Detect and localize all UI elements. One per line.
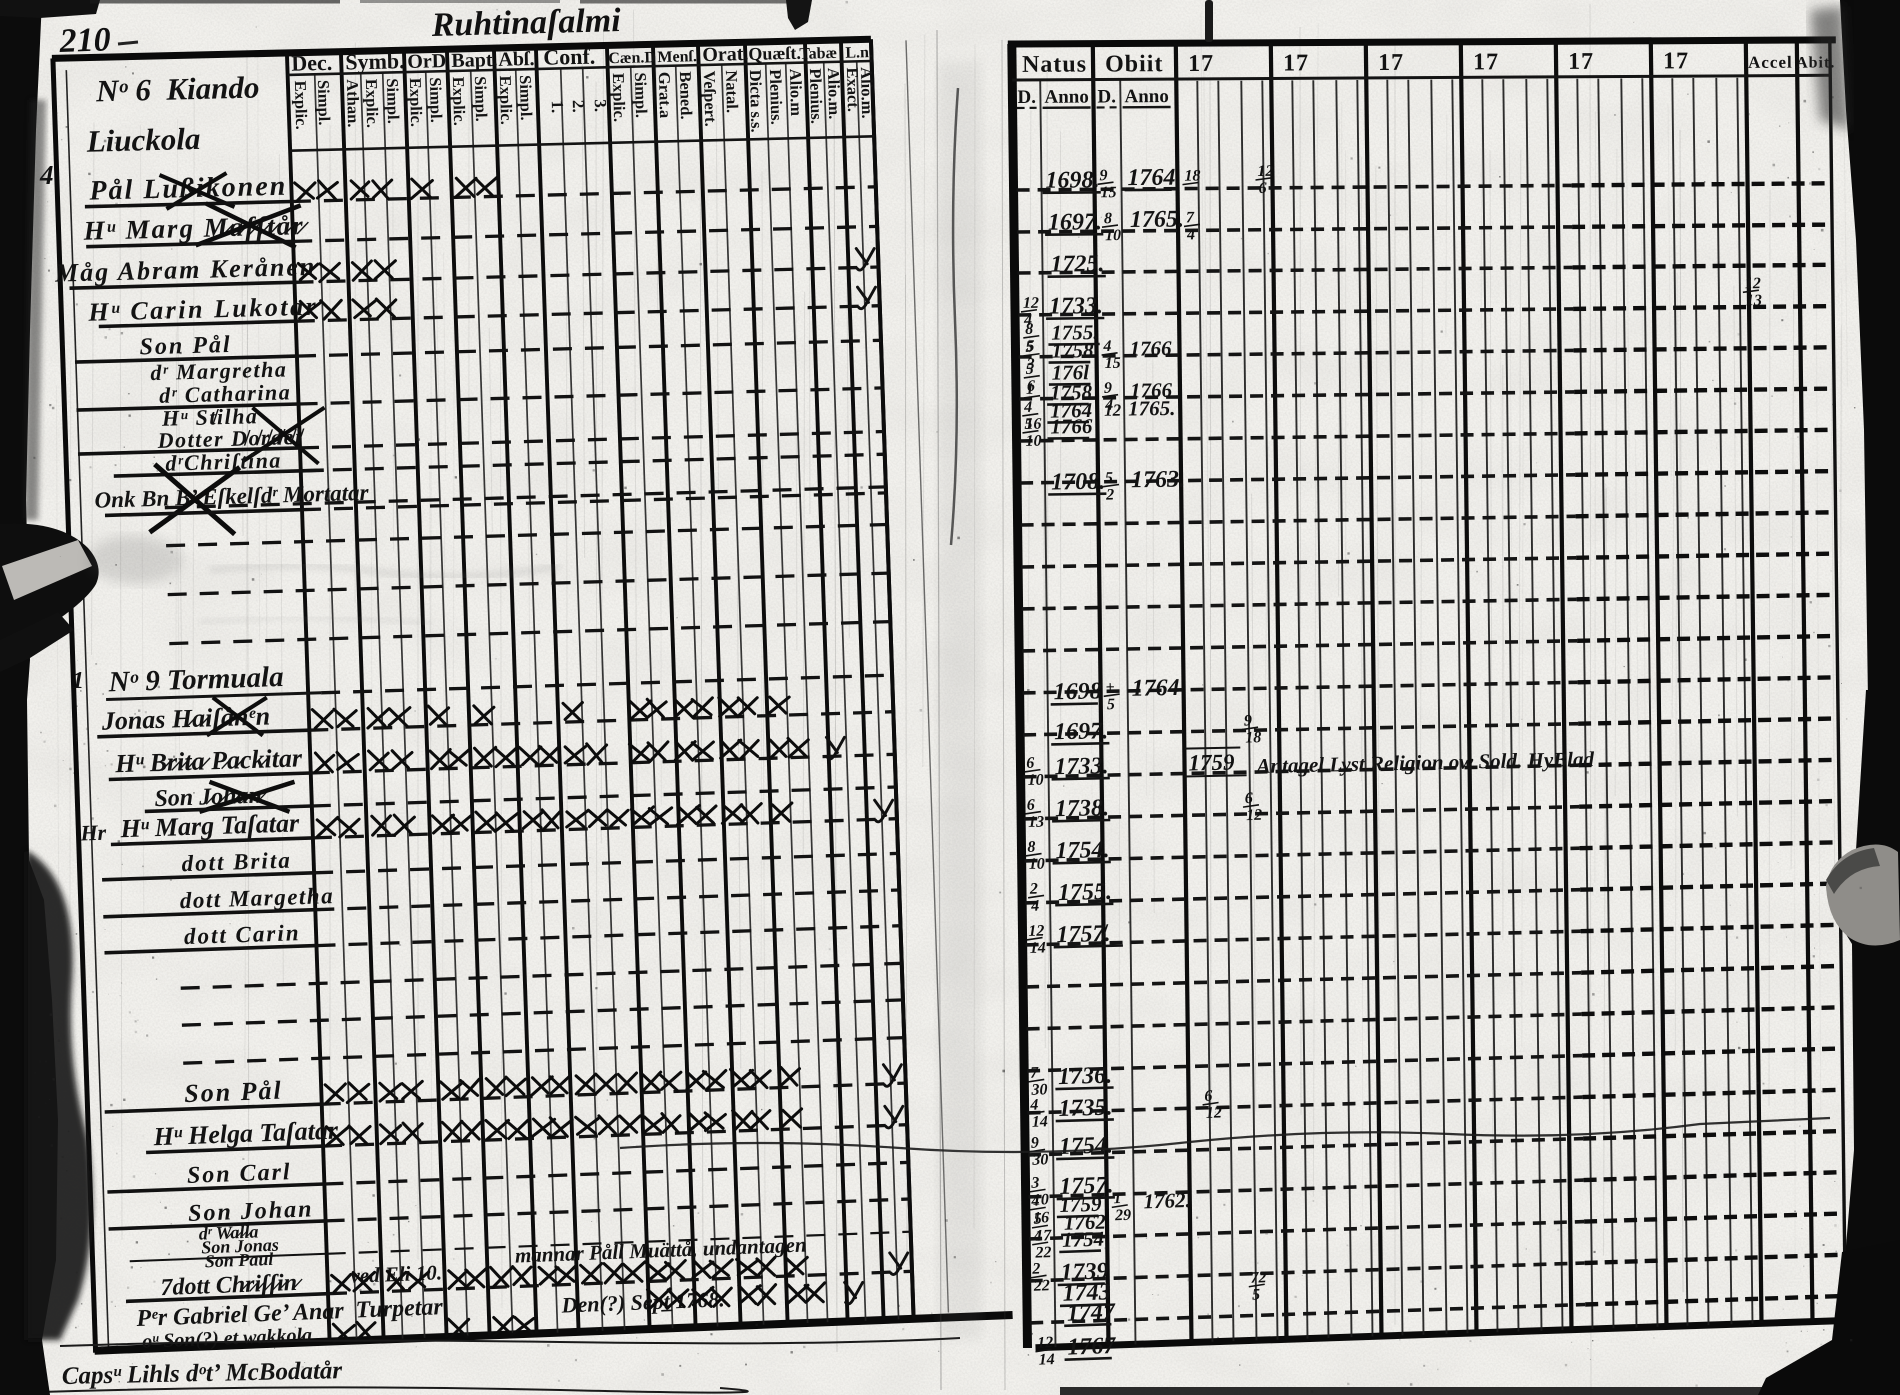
svg-text:1757̸.: 1757̸. — [1056, 921, 1111, 948]
svg-text:6: 6 — [1259, 180, 1267, 197]
svg-text:1738.: 1738. — [1055, 795, 1110, 822]
svg-text:Simpl.: Simpl. — [516, 75, 536, 121]
svg-text:Simpl.: Simpl. — [471, 76, 491, 122]
svg-text:1767: 1767 — [1067, 1333, 1117, 1361]
svg-text:1759: 1759 — [1188, 750, 1235, 776]
svg-text:1: 1 — [1113, 1190, 1122, 1207]
svg-text:15: 15 — [1101, 184, 1117, 201]
svg-text:Abſ.: Abſ. — [498, 48, 535, 71]
svg-text:4: 4 — [1033, 1227, 1043, 1244]
svg-text:Dec.: Dec. — [291, 50, 332, 76]
svg-text:Quæſt.: Quæſt. — [748, 43, 801, 64]
svg-text:Explic.: Explic. — [496, 75, 516, 125]
svg-text:2: 2 — [1029, 881, 1038, 898]
svg-text:1747: 1747 — [1066, 1299, 1116, 1327]
svg-text:Son Paul: Son Paul — [204, 1249, 273, 1272]
svg-text:Anno: Anno — [1124, 86, 1168, 107]
svg-text:13: 13 — [1746, 292, 1762, 309]
svg-text:1766: 1766 — [1129, 336, 1172, 361]
svg-text:2: 2 — [1031, 1261, 1041, 1278]
svg-text:Tabæ: Tabæ — [799, 45, 837, 63]
svg-text:Explic.: Explic. — [449, 77, 469, 127]
svg-text:Nᵒ 6 Kiando: Nᵒ 6 Kiando — [95, 70, 260, 109]
svg-text:1697.: 1697. — [1048, 209, 1102, 235]
svg-text:17: 17 — [1663, 48, 1689, 74]
svg-text:L.n.: L.n. — [845, 44, 873, 62]
svg-text:2: 2 — [1105, 487, 1114, 504]
svg-text:12: 12 — [1246, 807, 1262, 824]
svg-text:5: 5 — [1026, 361, 1034, 378]
svg-text:D.: D. — [1017, 87, 1036, 108]
svg-text:1698: 1698 — [1053, 678, 1101, 705]
svg-text:Symb.: Symb. — [345, 48, 405, 74]
svg-text:1733.: 1733. — [1049, 293, 1103, 320]
svg-text:Liuckola: Liuckola — [85, 121, 200, 159]
svg-text:30: 30 — [1031, 1151, 1048, 1168]
svg-text:1755.: 1755. — [1058, 879, 1113, 906]
svg-text:17: 17 — [1568, 49, 1594, 75]
svg-text:Obiit: Obiit — [1105, 51, 1163, 77]
svg-text:Grat.a: Grat.a — [655, 72, 675, 119]
svg-text:13: 13 — [1028, 814, 1044, 831]
svg-text:4: 4 — [1186, 226, 1195, 243]
svg-text:10: 10 — [1025, 433, 1041, 450]
svg-text:17: 17 — [1188, 51, 1214, 77]
svg-text:12: 12 — [1206, 1104, 1222, 1121]
svg-text:Plenius.: Plenius. — [806, 68, 826, 124]
svg-text:Nᵒ 9 Tormuala: Nᵒ 9 Tormuala — [107, 661, 284, 698]
svg-text:5: 5 — [1033, 1211, 1042, 1228]
svg-text:10: 10 — [1027, 772, 1043, 789]
svg-text:12: 12 — [1104, 401, 1122, 420]
svg-text:1: 1 — [1026, 381, 1034, 398]
svg-text:1765.: 1765. — [1128, 396, 1176, 421]
svg-text:4: 4 — [1030, 1193, 1040, 1210]
svg-text:Conf.: Conf. — [543, 44, 596, 70]
svg-text:15: 15 — [1105, 355, 1121, 372]
svg-text:1762.: 1762. — [1143, 1188, 1191, 1213]
svg-text:9: 9 — [1104, 380, 1112, 397]
svg-text:4: 4 — [1029, 1097, 1038, 1114]
svg-text:1708.: 1708. — [1051, 469, 1105, 496]
svg-text:1754.: 1754. — [1055, 837, 1110, 864]
svg-text:1754: 1754 — [1062, 1227, 1105, 1252]
svg-text:Alio.m.: Alio.m. — [857, 67, 877, 119]
svg-text:Ruhtinaſalmi: Ruhtinaſalmi — [430, 2, 621, 44]
svg-text:3.: 3. — [591, 99, 610, 112]
svg-text:Orat.: Orat. — [702, 43, 749, 66]
svg-text:10: 10 — [1105, 227, 1121, 244]
svg-text:Veſpert.: Veſpert. — [700, 71, 720, 127]
svg-text:Explic.: Explic. — [406, 78, 426, 128]
svg-text:1764: 1764 — [1131, 675, 1179, 702]
svg-text:8: 8 — [1027, 839, 1035, 856]
svg-text:Dicta s.s.: Dicta s.s. — [746, 70, 767, 133]
svg-text:6: 6 — [1245, 790, 1253, 807]
svg-text:210: 210 — [58, 21, 111, 60]
svg-text:+: + — [1105, 679, 1114, 696]
svg-text:D.: D. — [1097, 86, 1116, 107]
svg-text:1765.: 1765. — [1130, 207, 1184, 233]
svg-text:5: 5 — [1107, 696, 1115, 713]
svg-text:9: 9 — [1031, 1135, 1039, 1152]
svg-text:Accel: Accel — [1748, 53, 1793, 72]
svg-text:1697.: 1697. — [1054, 718, 1109, 745]
svg-text:14: 14 — [1030, 939, 1046, 956]
svg-text:dott Brita: dott Brita — [181, 848, 292, 877]
svg-text:Simpl.: Simpl. — [383, 78, 403, 124]
svg-text:1.: 1. — [548, 100, 567, 113]
svg-text:8: 8 — [1025, 321, 1033, 338]
svg-text:Bened.: Bened. — [676, 71, 696, 120]
svg-text:7: 7 — [1186, 209, 1195, 226]
svg-text:1754.: 1754. — [1059, 1132, 1114, 1160]
svg-text:Simpl.: Simpl. — [631, 72, 651, 118]
svg-text:22: 22 — [1033, 1277, 1051, 1295]
svg-text:dott Carin: dott Carin — [184, 920, 301, 949]
svg-text:OrD: OrD — [407, 50, 446, 73]
svg-text:Plenius.: Plenius. — [766, 69, 786, 125]
svg-text:Athan.: Athan. — [343, 79, 363, 128]
svg-text:Natus: Natus — [1022, 52, 1087, 78]
svg-text:Explic.: Explic. — [291, 80, 311, 130]
svg-text:Son Pål: Son Pål — [139, 332, 232, 360]
svg-text:17: 17 — [1378, 50, 1404, 76]
svg-text:18: 18 — [1245, 729, 1261, 746]
svg-text:Explic.: Explic. — [609, 73, 629, 123]
svg-text:22: 22 — [1034, 1244, 1052, 1262]
svg-text:Explic.: Explic. — [362, 79, 382, 129]
svg-text:17: 17 — [1473, 49, 1499, 75]
svg-text:1736.: 1736. — [1058, 1063, 1113, 1090]
svg-text:3: 3 — [1030, 1175, 1040, 1192]
svg-text:8: 8 — [1104, 210, 1112, 227]
svg-text:5: 5 — [1105, 470, 1113, 487]
svg-text:6: 6 — [1204, 1088, 1212, 1105]
svg-text:1764: 1764 — [1127, 165, 1175, 191]
svg-text:Son Pål: Son Pål — [184, 1076, 284, 1109]
svg-text:Cæn.D: Cæn.D — [608, 49, 656, 67]
svg-text:Simpl.: Simpl. — [426, 77, 446, 123]
svg-text:Simpl.: Simpl. — [314, 80, 334, 126]
svg-text:Natal.: Natal. — [722, 70, 742, 113]
svg-text:4: 4 — [1102, 338, 1111, 355]
svg-text:4: 4 — [1030, 898, 1039, 915]
svg-text:5: 5 — [1025, 339, 1033, 356]
svg-text:1698.: 1698. — [1045, 167, 1099, 193]
svg-text:5: 5 — [1252, 1286, 1261, 1303]
svg-text:4: 4 — [1023, 399, 1032, 416]
svg-text:9: 9 — [1099, 167, 1107, 184]
svg-text:Hr: Hr — [79, 820, 107, 846]
svg-text:14: 14 — [1038, 1351, 1055, 1369]
svg-text:1725.: 1725. — [1050, 251, 1104, 278]
svg-text:Alio.m.: Alio.m. — [824, 68, 844, 120]
svg-text:1766: 1766 — [1050, 414, 1093, 439]
svg-text:2.: 2. — [569, 100, 588, 113]
svg-text:17: 17 — [1283, 50, 1309, 76]
svg-text:Anno: Anno — [1044, 87, 1088, 108]
svg-text:7: 7 — [1030, 1065, 1039, 1082]
svg-text:5: 5 — [1024, 416, 1032, 433]
svg-text:6: 6 — [1026, 755, 1034, 772]
svg-text:Menſ.: Menſ. — [657, 48, 697, 66]
svg-text:9: 9 — [1244, 712, 1252, 729]
svg-text:1733.: 1733. — [1054, 753, 1109, 780]
svg-text:1758: 1758 — [1051, 338, 1094, 363]
svg-text:Alio.m: Alio.m — [786, 69, 806, 117]
svg-text:1735.: 1735. — [1058, 1094, 1113, 1122]
svg-text:Bapt.: Bapt. — [451, 49, 498, 72]
svg-text:1: 1 — [72, 668, 84, 694]
svg-text:10: 10 — [1029, 856, 1045, 873]
svg-text:1763.: 1763. — [1131, 467, 1185, 494]
svg-text:29: 29 — [1114, 1207, 1132, 1225]
svg-text:6: 6 — [1027, 797, 1035, 814]
svg-text:14: 14 — [1032, 1113, 1048, 1130]
